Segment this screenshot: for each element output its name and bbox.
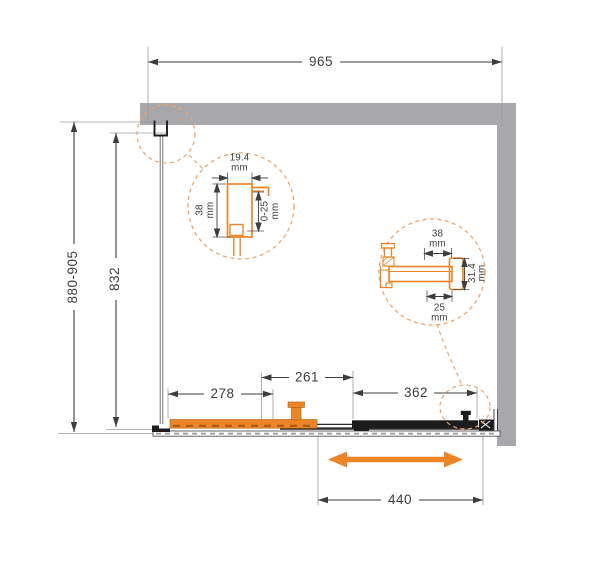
wall-right — [497, 103, 516, 446]
sliding-door-panel — [352, 420, 478, 428]
door-knob-cap — [461, 411, 471, 415]
drawing-canvas: 965 880-905 832 278 261 362 — [0, 0, 600, 564]
roller-carriage-cap — [288, 402, 305, 408]
door-knob-stem — [463, 414, 469, 421]
dimension-glass-height: 832 — [107, 133, 125, 427]
detail1-adjustment-unit: mm — [270, 203, 281, 220]
detail2-bottom-unit: mm — [431, 313, 448, 324]
detail-callout-door-profile: 38 mm 31.4 mm 25 mm — [379, 219, 490, 429]
dim-door-panel-label: 362 — [404, 385, 428, 400]
dimension-top-width: 965 — [148, 54, 502, 71]
detail2-side-unit: mm — [477, 265, 488, 282]
shower-enclosure-technical-drawing: 965 880-905 832 278 261 362 — [0, 0, 600, 564]
dim-fixed-panel-label: 278 — [210, 386, 234, 401]
detail1-depth-value: 38 — [195, 204, 206, 216]
detail1-depth-unit: mm — [205, 202, 216, 219]
detail2-top-unit: mm — [429, 239, 446, 250]
slide-direction-arrow — [328, 452, 463, 468]
door-guide-block — [354, 428, 369, 431]
bottom-rail-assembly — [152, 402, 500, 436]
callout-leader-curve — [437, 324, 462, 386]
dimension-overlap: 261 — [262, 370, 354, 386]
dimension-height-range: 880-905 — [65, 122, 83, 432]
side-glass-panel — [160, 136, 163, 425]
detail1-adjustment-value: 0-25 — [260, 200, 271, 221]
dimension-fixed-panel: 278 — [168, 386, 273, 402]
dim-glass-height-label: 832 — [107, 267, 122, 291]
detail1-width-unit: mm — [231, 163, 248, 174]
callout-leader-line — [189, 155, 203, 169]
dim-overlap-label: 261 — [295, 370, 319, 385]
dimension-door-panel: 362 — [353, 385, 477, 401]
dim-top-width-label: 965 — [309, 54, 333, 69]
wall-top — [140, 103, 516, 125]
dim-slide-opening-label: 440 — [388, 492, 412, 507]
roller-carriage-body — [292, 406, 302, 420]
left-rail-bracket — [152, 426, 170, 433]
dim-height-range-label: 880-905 — [65, 250, 80, 303]
dimension-slide-opening: 440 — [318, 492, 483, 509]
